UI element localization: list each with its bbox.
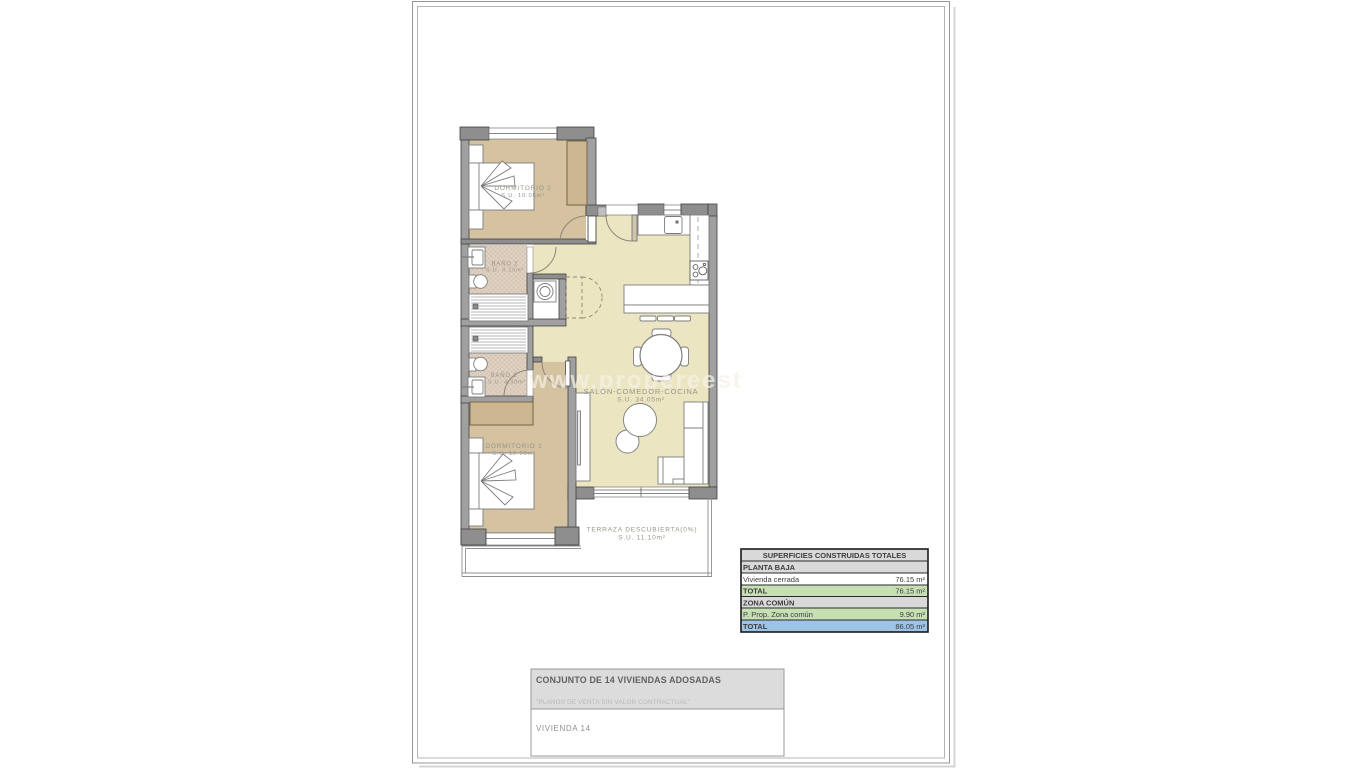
svg-text:P. Prop. Zona común: P. Prop. Zona común — [743, 610, 813, 619]
svg-text:76.15 m²: 76.15 m² — [895, 587, 925, 596]
svg-text:DORMITORIO 1: DORMITORIO 1 — [485, 443, 542, 450]
svg-text:76.15 m²: 76.15 m² — [895, 575, 925, 584]
svg-text:S.U. 4.30m²: S.U. 4.30m² — [488, 380, 526, 386]
svg-text:S.U. 12.60m²: S.U. 12.60m² — [492, 451, 536, 457]
svg-text:9.90 m²: 9.90 m² — [900, 610, 926, 619]
svg-text:TOTAL: TOTAL — [743, 622, 768, 631]
svg-text:PLANTA BAJA: PLANTA BAJA — [743, 563, 796, 572]
svg-text:S.U. 4.15m²: S.U. 4.15m² — [486, 268, 524, 274]
svg-text:DORMITORIO 2: DORMITORIO 2 — [494, 185, 551, 192]
svg-text:VIVIENDA 14: VIVIENDA 14 — [536, 724, 591, 733]
svg-text:S.U. 11.10m²: S.U. 11.10m² — [618, 535, 665, 542]
svg-text:SALÓN-COMEDOR-COCINA: SALÓN-COMEDOR-COCINA — [584, 387, 699, 396]
svg-text:"PLANOS DE VENTA SIN VALOR CON: "PLANOS DE VENTA SIN VALOR CONTRACTUAL" — [536, 699, 690, 706]
svg-text:CONJUNTO DE 14 VIVIENDAS ADOSA: CONJUNTO DE 14 VIVIENDAS ADOSADAS — [536, 675, 721, 685]
svg-text:SUPERFICIES CONSTRUIDAS TOTALE: SUPERFICIES CONSTRUIDAS TOTALES — [763, 551, 907, 560]
svg-text:86.05 m²: 86.05 m² — [895, 622, 925, 631]
svg-text:Vivienda cerrada: Vivienda cerrada — [743, 575, 800, 584]
svg-text:TOTAL: TOTAL — [743, 587, 768, 596]
svg-text:TERRAZA DESCUBIERTA(0%): TERRAZA DESCUBIERTA(0%) — [587, 527, 698, 534]
svg-text:S.U. 34.05m²: S.U. 34.05m² — [617, 397, 665, 404]
svg-text:BAÑO 1: BAÑO 1 — [491, 372, 518, 379]
svg-text:S.U. 10.05m²: S.U. 10.05m² — [501, 193, 545, 199]
svg-text:BAÑO 2: BAÑO 2 — [492, 261, 519, 268]
svg-text:ZONA COMÚN: ZONA COMÚN — [743, 598, 794, 607]
